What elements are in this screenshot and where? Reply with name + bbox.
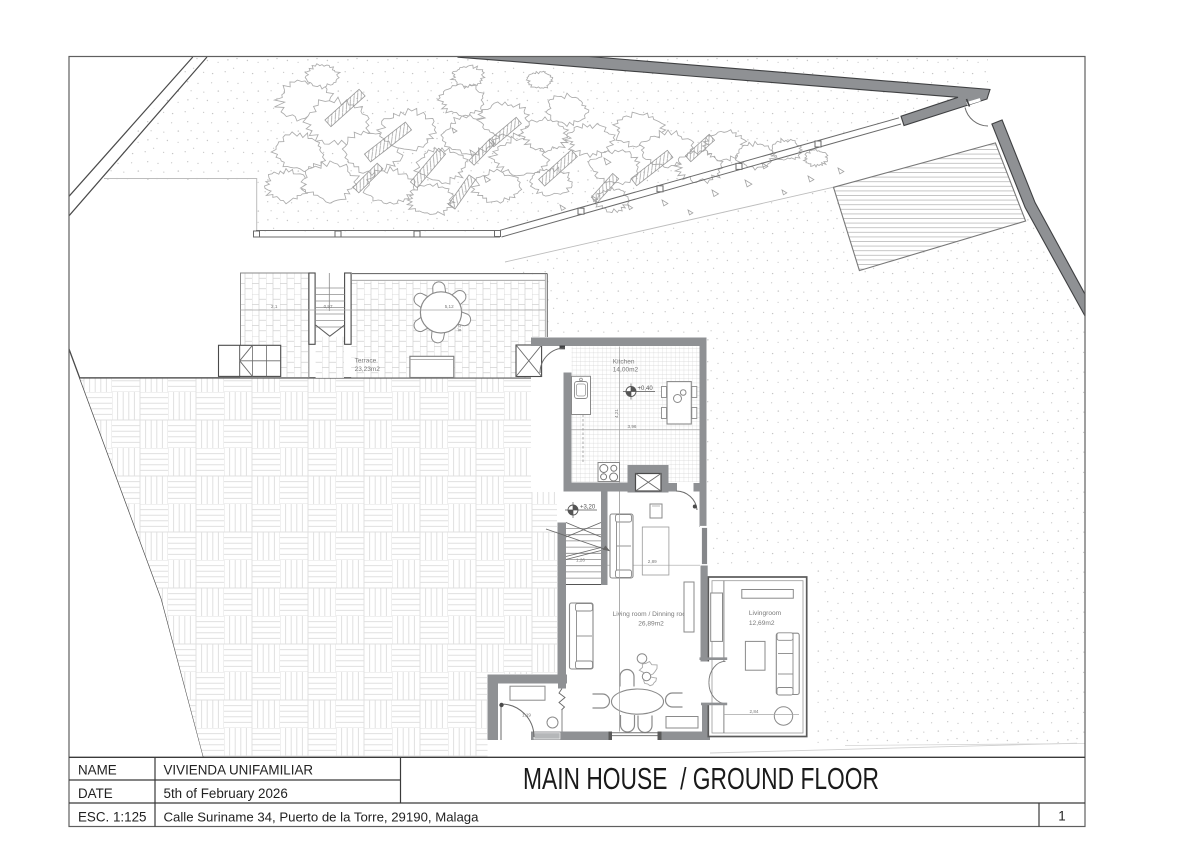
svg-text:5th of February 2026: 5th of February 2026 xyxy=(164,786,288,801)
svg-text:2,1: 2,1 xyxy=(271,304,278,309)
svg-text:0,97: 0,97 xyxy=(324,304,333,309)
svg-text:+3,20: +3,20 xyxy=(580,505,596,511)
svg-text:DATE: DATE xyxy=(78,786,113,801)
svg-text:2,84: 2,84 xyxy=(750,709,759,714)
svg-text:Living room / Dinning room: Living room / Dinning room xyxy=(613,611,692,618)
svg-text:ESC. 1:125: ESC. 1:125 xyxy=(78,810,146,825)
svg-text:Kitchen: Kitchen xyxy=(613,359,635,366)
svg-text:1,19: 1,19 xyxy=(522,713,531,718)
svg-text:26,89m2: 26,89m2 xyxy=(638,621,664,628)
svg-text:1: 1 xyxy=(1058,809,1065,824)
svg-text:MAIN HOUSE / GROUND FLOOR: MAIN HOUSE / GROUND FLOOR xyxy=(523,762,879,796)
svg-text:2,8: 2,8 xyxy=(457,325,462,332)
svg-text:+0,40: +0,40 xyxy=(638,386,654,392)
svg-text:4,21: 4,21 xyxy=(614,409,619,418)
svg-text:5,12: 5,12 xyxy=(445,304,454,309)
svg-text:NAME: NAME xyxy=(78,763,117,778)
svg-text:Terrace: Terrace xyxy=(355,358,377,365)
svg-text:12,69m2: 12,69m2 xyxy=(749,620,775,627)
svg-text:2,89: 2,89 xyxy=(648,559,657,564)
svg-text:Livingroom: Livingroom xyxy=(749,610,782,617)
svg-text:1,26: 1,26 xyxy=(576,558,585,563)
svg-text:VIVIENDA UNIFAMILIAR: VIVIENDA UNIFAMILIAR xyxy=(164,763,314,778)
svg-text:23,23m2: 23,23m2 xyxy=(355,366,381,373)
svg-text:3,96: 3,96 xyxy=(628,424,637,429)
svg-text:14,00m2: 14,00m2 xyxy=(613,367,639,374)
svg-text:Calle Suriname 34, Puerto de l: Calle Suriname 34, Puerto de la Torre, 2… xyxy=(164,810,480,825)
